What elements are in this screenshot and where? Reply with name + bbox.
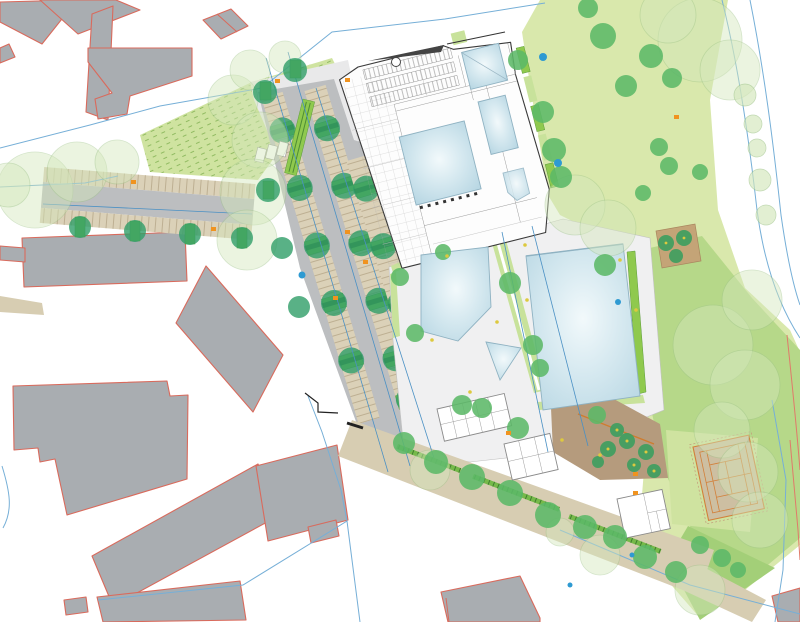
context-building <box>22 232 187 287</box>
context-building <box>13 381 188 515</box>
context-building <box>64 597 88 615</box>
retaining-wall <box>305 393 338 413</box>
context-building <box>0 44 15 63</box>
boundary-drop <box>347 521 360 622</box>
context-building <box>176 266 283 412</box>
site-plan-svg <box>0 0 800 622</box>
site-plan-image <box>0 0 800 622</box>
road-corner-curve <box>2 466 9 528</box>
path-stub-west <box>0 296 44 315</box>
context-building <box>203 9 248 39</box>
context-building <box>0 246 25 262</box>
context-building <box>441 576 540 622</box>
